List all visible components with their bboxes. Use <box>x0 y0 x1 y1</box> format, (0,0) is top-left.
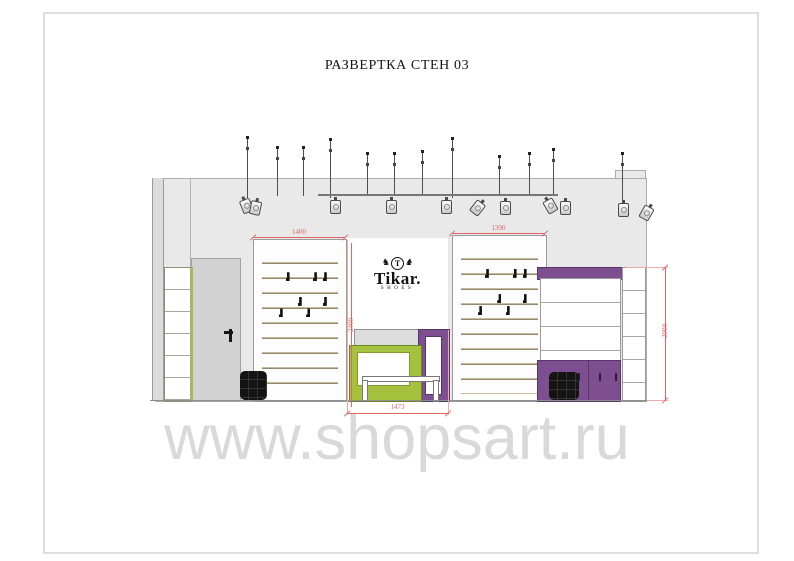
spotlight-icon <box>618 203 629 217</box>
pendant-rod <box>303 146 304 196</box>
shoe-icon <box>286 272 290 281</box>
shoe-icon <box>306 308 310 317</box>
shoe-icon <box>497 294 501 303</box>
door <box>191 258 241 402</box>
bench-leg <box>362 380 368 402</box>
slatwall-unit-left <box>253 239 347 402</box>
shoe-icon <box>506 306 510 315</box>
pouf-icon <box>240 371 267 400</box>
pendant-rod <box>499 155 500 196</box>
drawing-sheet: РАЗВЕРТКА СТЕН 03 www.shopsart.ru ♞T♞ Ti… <box>0 0 794 561</box>
pendant-rod <box>452 137 453 198</box>
shoe-icon <box>323 297 327 306</box>
wall-left-edge <box>152 178 164 401</box>
pendant-rod <box>422 150 423 196</box>
pendant-rod <box>330 138 331 198</box>
extension-line <box>626 267 668 268</box>
slat-panel <box>262 249 338 394</box>
pendant-rod <box>367 152 368 196</box>
dim-left-unit-width: 1400 <box>253 228 345 236</box>
cabinet-shelves <box>540 278 621 362</box>
shoe-icon <box>313 272 317 281</box>
shoe-icon <box>513 269 517 278</box>
pendant-rod <box>553 148 554 196</box>
shoe-icon <box>523 269 527 278</box>
brand-subtitle: SHOES <box>347 286 448 292</box>
spotlight-icon <box>441 200 452 214</box>
pouf-icon <box>549 372 579 400</box>
spotlight-icon <box>500 201 511 215</box>
cabinet-handle-icon <box>615 373 617 381</box>
brand-logo: ♞T♞ Tikar. SHOES <box>347 256 448 292</box>
shoe-icon <box>323 272 327 281</box>
dim-right-unit-width: 1390 <box>452 224 545 232</box>
pendant-rod <box>277 146 278 196</box>
door-handle-icon <box>229 329 232 342</box>
floor-line <box>150 400 650 401</box>
shoe-icon <box>523 294 527 303</box>
narrow-shelf-unit <box>164 267 193 402</box>
spotlight-icon <box>386 200 397 214</box>
pendant-rod <box>247 136 248 198</box>
dimension-line <box>253 237 345 238</box>
dim-cash-desk-width: 1473 <box>347 403 448 411</box>
pendant-rod <box>529 152 530 196</box>
bench-leg <box>433 380 439 402</box>
drawing-title: РАЗВЕРТКА СТЕН 03 <box>0 58 794 74</box>
dim-left-height: 2400 <box>347 310 355 340</box>
light-track <box>318 194 558 196</box>
extension-line <box>448 330 449 415</box>
brand-name: Tikar. <box>347 271 448 286</box>
shoe-icon <box>478 306 482 315</box>
pendant-rod <box>622 152 623 202</box>
bench <box>362 376 440 382</box>
shoe-icon <box>298 297 302 306</box>
dimension-line <box>347 413 448 414</box>
cabinet-door-divider <box>588 361 589 401</box>
cabinet-handle-icon <box>599 373 601 381</box>
spotlight-icon <box>330 200 341 214</box>
slat-panel <box>461 245 538 394</box>
dimension-line <box>452 233 545 234</box>
cat-icon: ♞ <box>405 256 413 271</box>
cabinet-side-column <box>622 267 646 402</box>
shoe-icon <box>279 308 283 317</box>
spotlight-icon <box>560 201 571 215</box>
shoe-icon <box>485 269 489 278</box>
dim-right-height: 2000 <box>661 316 669 346</box>
slatwall-unit-right <box>452 235 547 402</box>
pendant-rod <box>394 152 395 196</box>
